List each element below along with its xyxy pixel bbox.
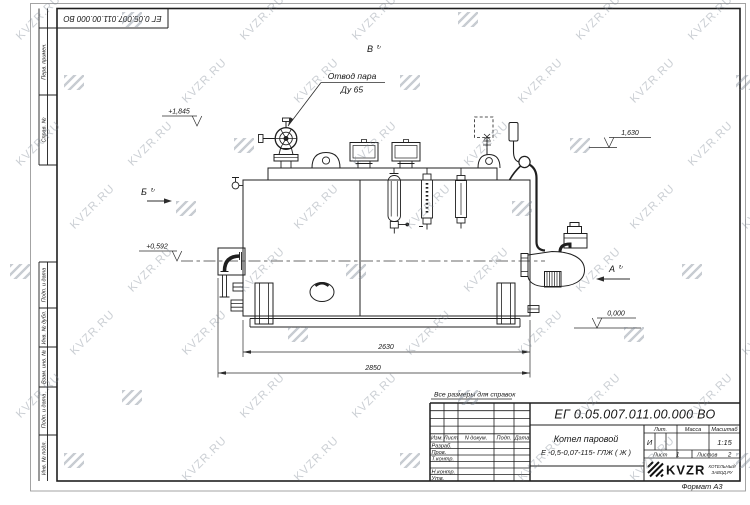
steam-outlet-label-line2: Ду 65 [340,85,363,95]
elevation-1630: 1,630 [621,130,639,137]
view-label-b-mark: ↻ [150,188,155,194]
safety-valve [475,117,501,168]
margin-field-perv-primen: Перв. примен. [41,43,47,80]
view-label-v-mark: ↻ [376,45,381,51]
sheet-label: Лист [652,452,668,458]
front-burner [218,248,245,311]
margin-field-vzam-inv: Взам. инв. № [41,350,47,384]
doc-number: ЕГ 0.05.007.011.00.000 ВО [554,408,715,422]
annotation-texts: Отвод пара Ду 65 Б ↻ В ↻ А ↻ +1,845 1,63… [141,44,639,372]
boiler-shell [181,168,545,316]
product-title-line1: Котел паровой [554,434,619,444]
product-title-line2: Е -0,5-0,07-115- ГЛЖ ( Ж ) [541,448,632,457]
brand-sub2: ЗАВОД.РУ [711,470,733,475]
drawing-sheet: ЕГ 0.05.007.011.00.000 ВО Перв. примен. … [0,0,750,500]
left-fittings [232,178,243,292]
view-label-v: В [367,44,373,54]
brand-sub1: КОТЕЛЬНЫЙ [708,464,736,469]
view-label-b: Б [141,187,147,197]
top-stamp-doc-number: ЕГ 0.05.007.011.00.000 ВО [63,14,161,23]
title-block-texts: Все размеры для справок ЕГ 0.05.007.011.… [431,391,739,491]
row-prov: Пров. [432,450,447,456]
elevation-0592: +0,592 [146,244,168,251]
view-label-a-mark: ↻ [618,265,623,271]
margin-field-sprav-no: Справ. № [41,117,47,142]
margin-field-podp-data-2: Подп. и дата [41,394,47,428]
sheets-num: 2 [727,452,732,458]
top-hatches [350,140,420,169]
margin-field-podp-data-1: Подп. и дата [41,268,47,302]
row-utv: Утв. [431,476,445,482]
lifting-lug [312,153,340,169]
col-list: Лист [443,436,459,442]
brand-name: KVZR [666,463,705,478]
lit-label: Лит. [653,427,667,433]
margin-labels: Перв. примен. Справ. № Подп. и дата Инв.… [41,43,47,475]
format-label: Формат А3 [681,482,723,491]
row-nkontr: Н.контр. [432,469,456,475]
gauge-glasses [388,168,467,234]
lit-value: И [647,438,653,447]
col-doc: N докум. [465,436,488,442]
col-izm: Изм. [431,436,443,442]
dimension-2850: 2850 [364,365,381,372]
row-tkontr: Т.контр. [432,456,455,462]
steam-outlet-valve [259,118,299,168]
reference-note: Все размеры для справок [434,391,516,399]
elevation-0000: 0,000 [607,311,625,318]
elevation-1845: +1,845 [168,109,190,116]
margin-field-inv-podl: Инв. № подл. [41,441,47,475]
scale-label: Масштаб [711,427,738,433]
scale-value: 1:15 [717,438,732,447]
col-data: Дата [514,436,530,442]
annotations [139,83,651,378]
support-legs [250,283,520,327]
steam-outlet-label-line1: Отвод пара [328,71,377,81]
row-razrab: Разраб. [432,443,452,449]
mass-label: Масса [685,427,702,433]
manhole [310,283,334,302]
view-label-a: А [608,264,615,274]
sheet-num: 1 [676,452,679,458]
sheets-label: Листов [696,452,717,458]
col-podp: Подп. [497,436,512,442]
dimension-2630: 2630 [377,344,394,351]
margin-field-inv-dubl: Инв. № дубл. [41,311,47,345]
rear-burner [521,223,587,313]
kvzr-logo-mark [648,462,663,477]
gost-drawing-svg: ЕГ 0.05.007.011.00.000 ВО Перв. примен. … [0,0,750,500]
boiler-drawing [181,117,587,327]
level-column [509,123,545,251]
page: { "sheet": { "top_stamp": "ЕГ 0.05.007.0… [0,0,750,500]
